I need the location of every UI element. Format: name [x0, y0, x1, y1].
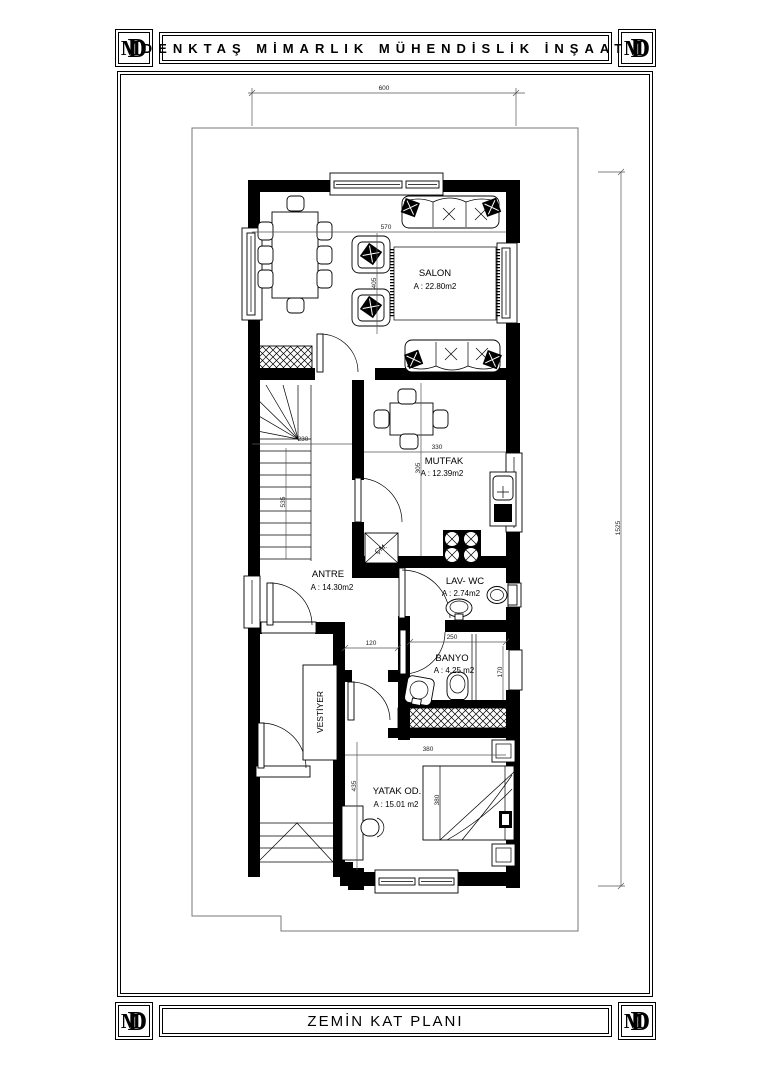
dimension-stairs: 230 535 — [252, 436, 352, 559]
svg-text:170: 170 — [497, 666, 504, 677]
dimension-top-width: 600 — [248, 85, 525, 126]
vestiyer-label: VESTİYER — [315, 691, 325, 733]
antre-area: A : 14.30m2 — [311, 583, 354, 592]
logo-letter-m: M — [624, 1009, 644, 1034]
svg-text:330: 330 — [432, 444, 443, 451]
svg-text:120: 120 — [366, 640, 377, 647]
plan-title: ZEMİN KAT PLANI — [307, 1013, 463, 1030]
svg-text:570: 570 — [381, 224, 392, 231]
svg-text:380: 380 — [434, 794, 441, 805]
kitchen-sink — [490, 472, 516, 526]
svg-text:230: 230 — [298, 436, 309, 443]
lavwc-area: A : 2.74m2 — [442, 589, 481, 598]
yatak-area: A : 15.01 m2 — [374, 800, 419, 809]
stove — [443, 530, 481, 564]
window-salon-top — [330, 173, 443, 195]
lavwc-toilet — [487, 585, 517, 605]
desk — [342, 806, 384, 860]
door-mutfak — [355, 478, 402, 522]
entrance-steps — [258, 823, 333, 862]
wardrobe: VESTİYER — [303, 665, 337, 760]
banyo-name: BANYO — [435, 653, 468, 664]
salon-name: SALON — [419, 268, 451, 279]
door-yatak — [348, 682, 390, 720]
kitchen-table — [374, 389, 448, 449]
window-yatak-bottom — [375, 870, 458, 893]
door-salon — [317, 334, 358, 372]
nightstand-bottom — [492, 844, 515, 866]
svg-text:1525: 1525 — [615, 520, 622, 535]
door-vestiyer-entry — [261, 583, 316, 633]
logo-letter-m: M — [121, 1009, 141, 1034]
window-antre-left — [244, 576, 260, 628]
lavwc-name: LAV- WC — [446, 576, 484, 587]
mutfak-name: MUTFAK — [425, 456, 464, 467]
staircase — [252, 385, 311, 561]
hatch-shaft-salon — [256, 346, 312, 371]
antre-name: ANTRE — [312, 569, 344, 580]
washing-machine: ÇM. — [365, 533, 398, 563]
banyo-area: A : 4.25 m2 — [434, 666, 475, 675]
drawing-sheet: MD DENKTAŞ MİMARLIK MÜHENDİSLİK İNŞAAT M… — [0, 0, 768, 1087]
company-title: DENKTAŞ MİMARLIK MÜHENDİSLİK İNŞAAT — [143, 41, 628, 56]
sofa-top — [401, 196, 502, 228]
logo-letter-m: M — [121, 36, 141, 61]
svg-text:535: 535 — [280, 496, 287, 507]
svg-text:405: 405 — [371, 277, 378, 288]
svg-text:435: 435 — [351, 780, 358, 791]
salon-area: A : 22.80m2 — [414, 282, 457, 291]
svg-text:600: 600 — [379, 85, 390, 92]
dimension-koridor: 120 — [342, 640, 401, 651]
banyo-sink — [404, 675, 435, 707]
floor-plan: ÇM. VESTİYE — [0, 0, 768, 1087]
hatch-strip-banyo — [398, 708, 518, 728]
sofa-bottom — [404, 340, 502, 372]
svg-text:250: 250 — [447, 634, 458, 641]
svg-text:305: 305 — [415, 462, 422, 473]
nightstand-top — [492, 740, 515, 762]
door-main-entrance — [256, 723, 310, 777]
dimension-right-height: 1525 — [598, 169, 625, 889]
yatak-name: YATAK OD. — [373, 786, 422, 797]
svg-text:380: 380 — [423, 746, 434, 753]
dining-table — [258, 196, 332, 313]
armchair-2 — [352, 289, 390, 326]
logo-letter-m: M — [624, 36, 644, 61]
window-banyo-right — [509, 650, 522, 690]
mutfak-area: A : 12.39m2 — [421, 469, 464, 478]
armchair-1 — [352, 236, 390, 273]
